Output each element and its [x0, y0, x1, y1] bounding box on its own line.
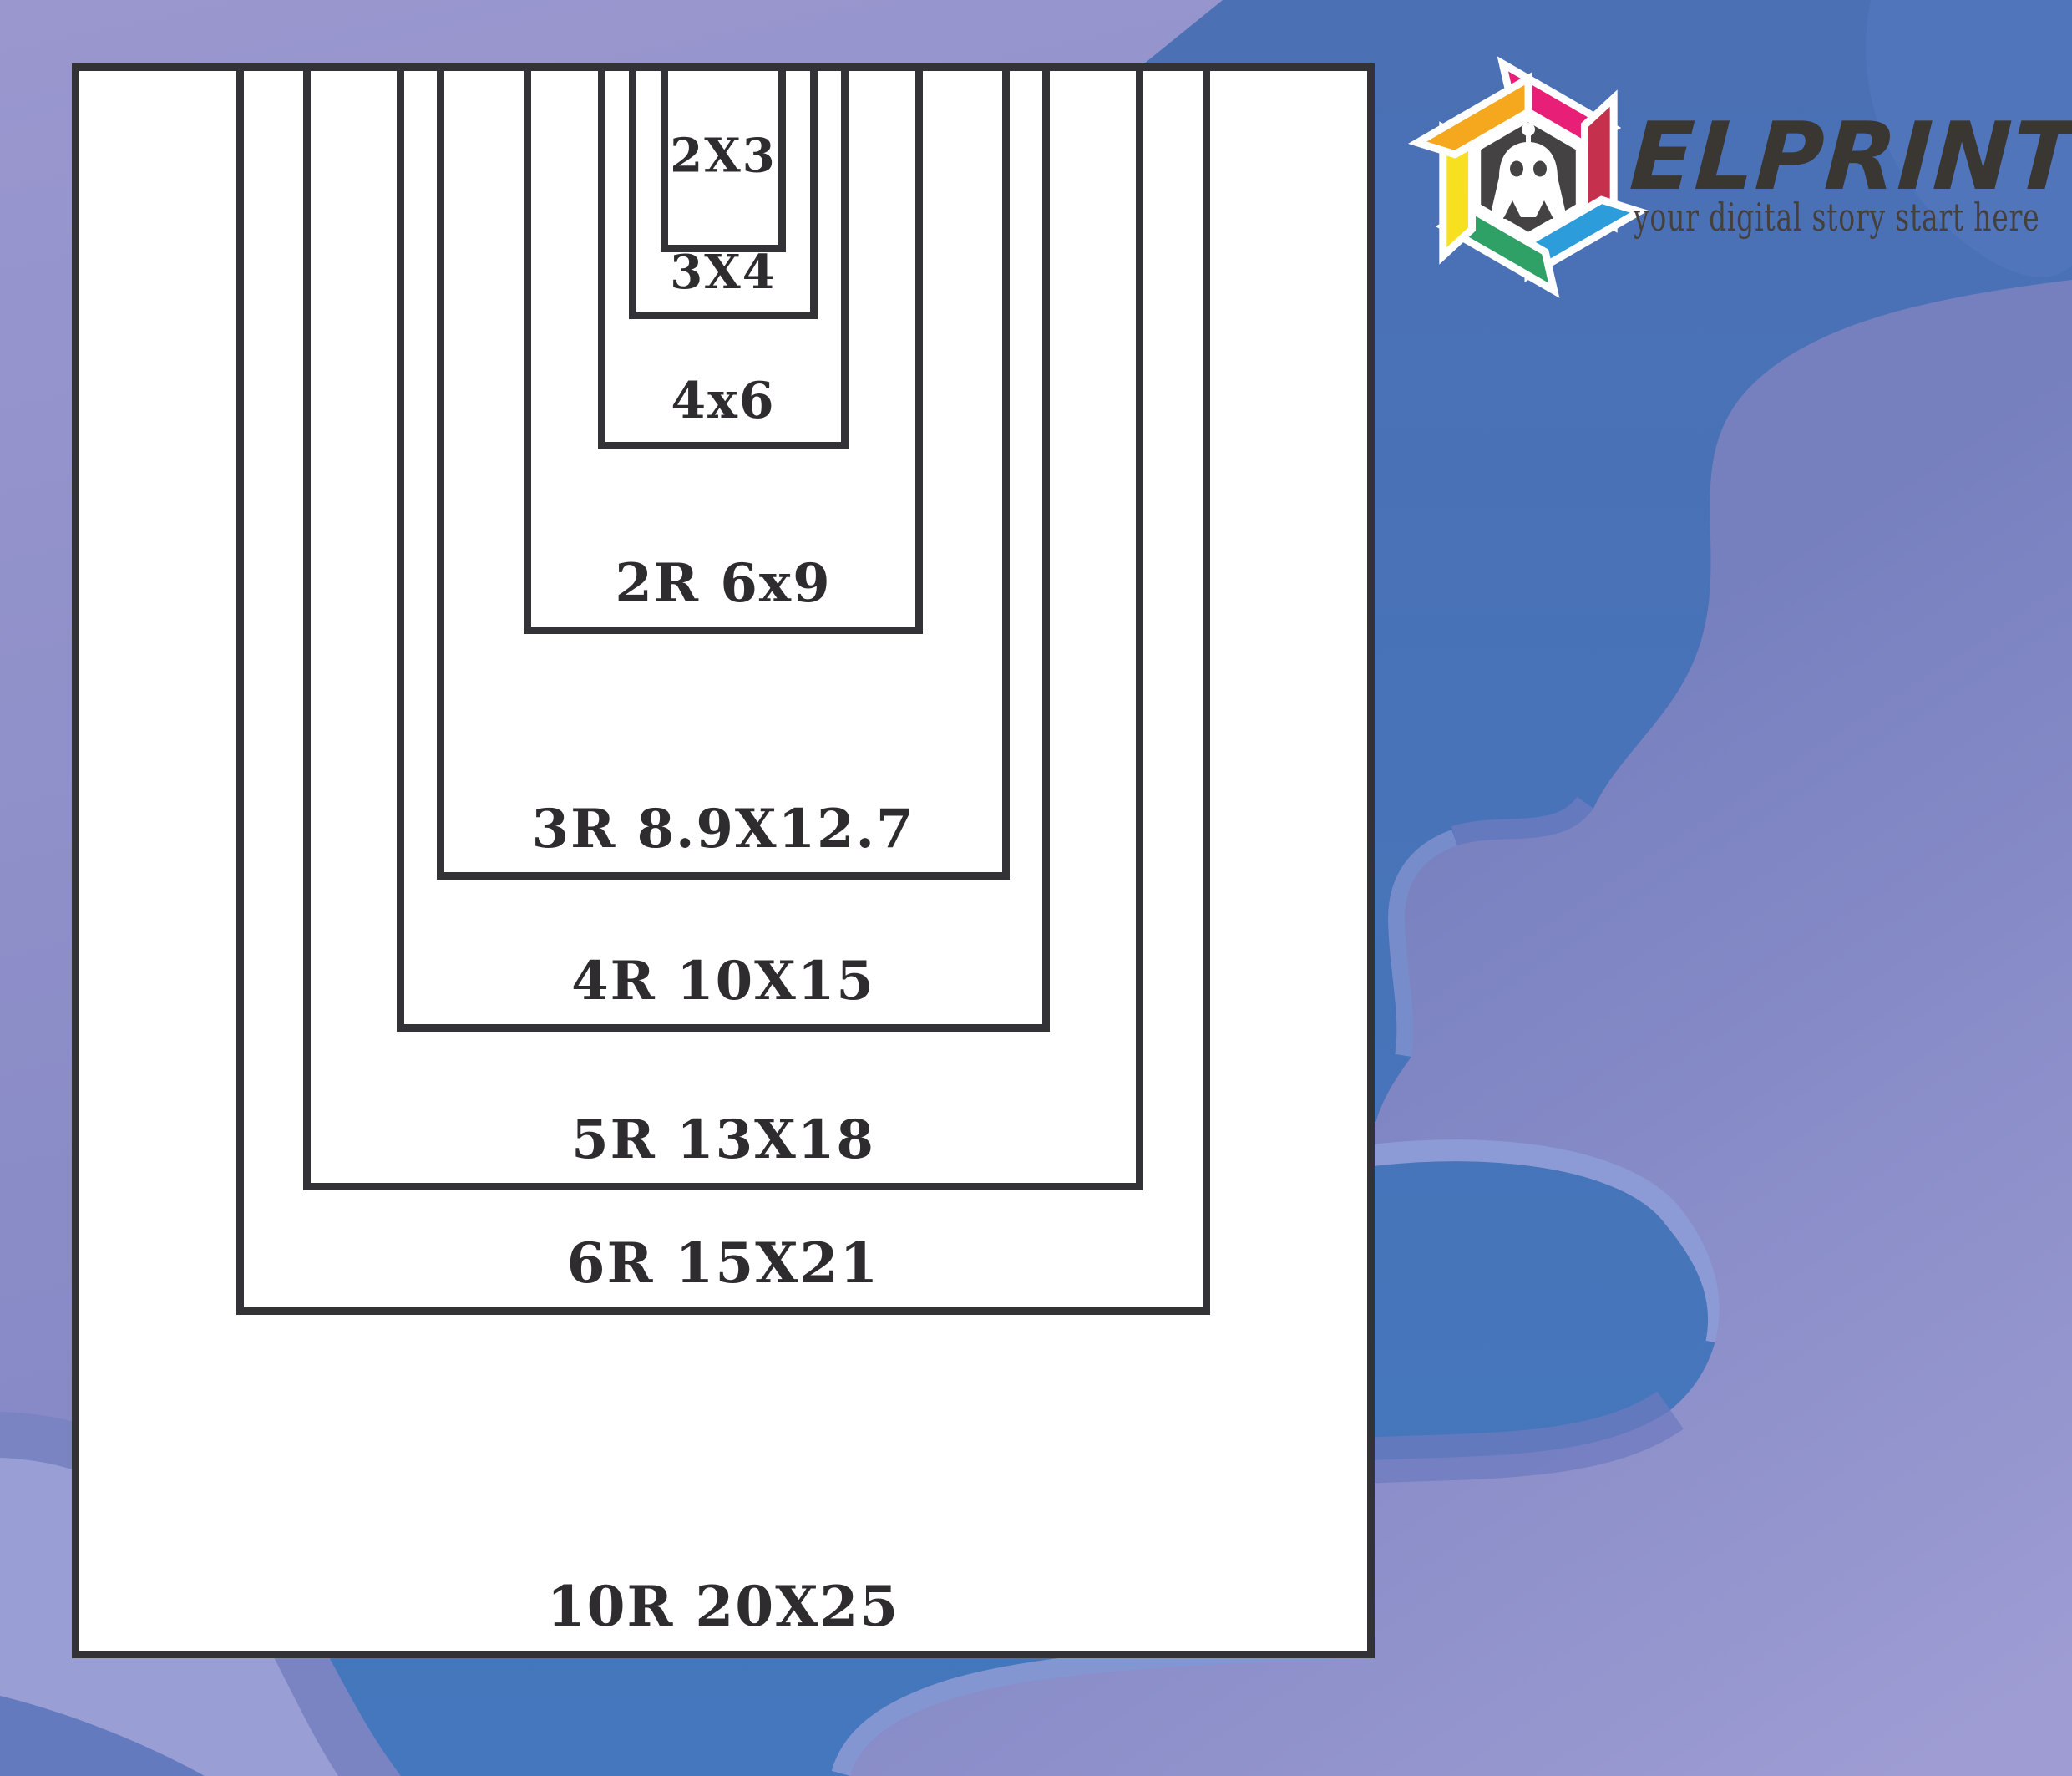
logo: ELPRINT your digital story start here	[1403, 48, 2071, 323]
size-label: 4x6	[605, 372, 841, 430]
brand-name: ELPRINT	[1628, 110, 2072, 204]
brand-tagline: your digital story start here	[1634, 196, 2039, 238]
size-label: 2X3	[668, 128, 778, 183]
robot-eye	[1510, 161, 1523, 177]
size-label: 3X4	[636, 245, 810, 300]
size-rect-2x3: 2X3	[661, 63, 786, 252]
size-label: 10R 20X25	[79, 1574, 1367, 1639]
size-label: 2R 6x9	[531, 552, 915, 615]
poster: 10R 20X256R 15X215R 13X184R 10X153R 8.9X…	[0, 0, 2072, 1776]
elprint-hexagon-icon	[1403, 48, 1654, 307]
size-label: 3R 8.9X12.7	[444, 798, 1002, 860]
size-label: 5R 13X18	[311, 1109, 1136, 1171]
robot-eye	[1533, 161, 1547, 177]
size-label: 4R 10X15	[404, 950, 1042, 1012]
size-label: 6R 15X21	[244, 1231, 1203, 1296]
